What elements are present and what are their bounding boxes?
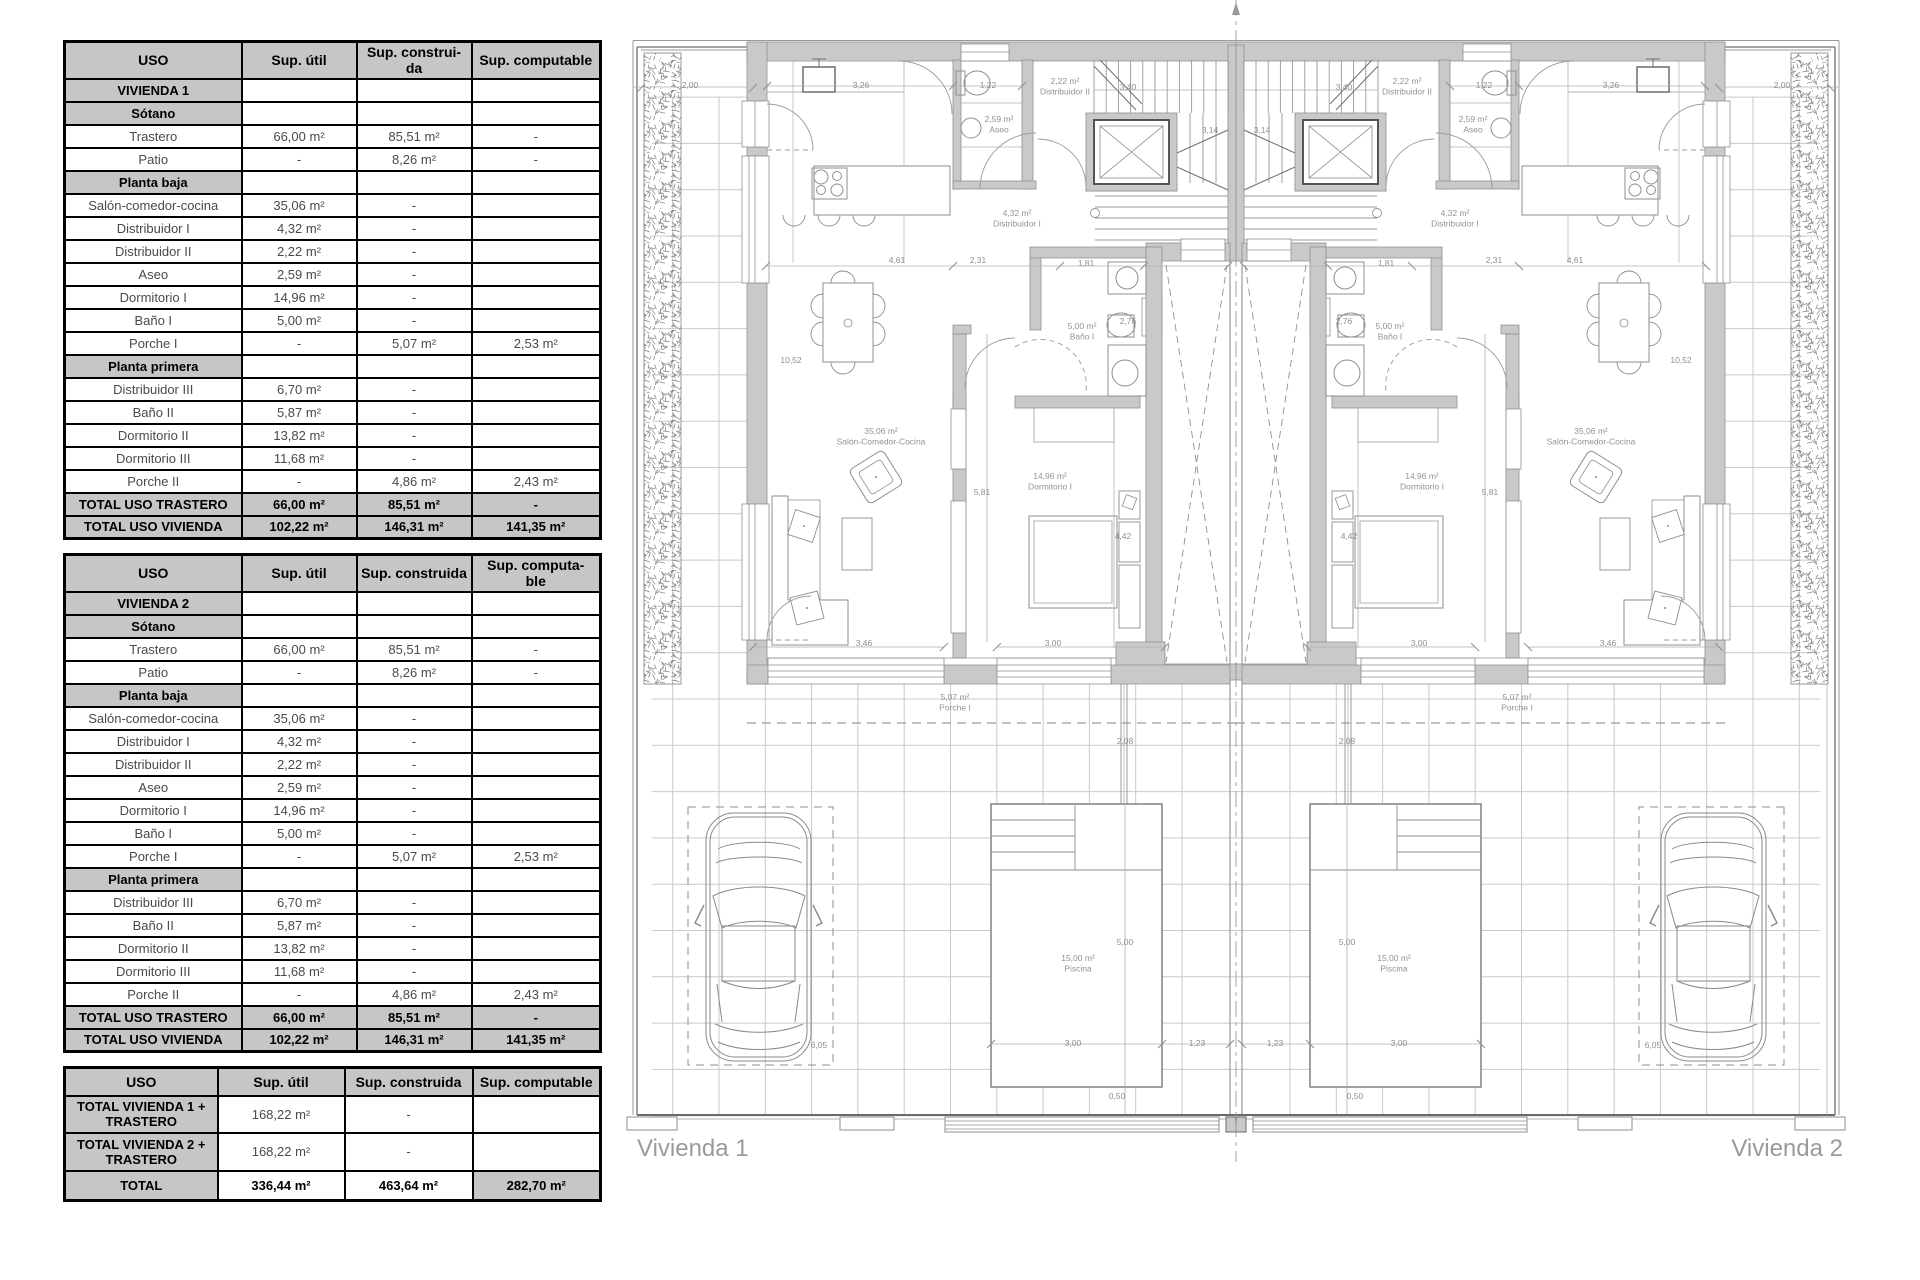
svg-text:4,32 m²Distribuidor I: 4,32 m²Distribuidor I — [1431, 208, 1479, 229]
svg-text:3,26: 3,26 — [853, 80, 870, 90]
svg-text:1,23: 1,23 — [1267, 1038, 1284, 1048]
svg-text:14,96 m²Dormitorio I: 14,96 m²Dormitorio I — [1400, 471, 1444, 492]
svg-text:2,59 m²Aseo: 2,59 m²Aseo — [1459, 114, 1488, 135]
svg-text:2,08: 2,08 — [1339, 736, 1356, 746]
svg-text:2,00: 2,00 — [682, 80, 699, 90]
svg-text:2,22 m²Distribuidor II: 2,22 m²Distribuidor II — [1382, 76, 1432, 97]
svg-text:0,50: 0,50 — [1109, 1091, 1126, 1101]
svg-text:1,23: 1,23 — [1189, 1038, 1206, 1048]
svg-text:Vivienda 2: Vivienda 2 — [1731, 1135, 1843, 1162]
svg-text:2,76: 2,76 — [1120, 316, 1137, 326]
svg-text:1,81: 1,81 — [1378, 258, 1395, 268]
svg-text:5,00: 5,00 — [1339, 937, 1356, 947]
svg-text:10,52: 10,52 — [780, 355, 802, 365]
svg-text:3,00: 3,00 — [1045, 638, 1062, 648]
svg-text:1,22: 1,22 — [1476, 80, 1493, 90]
svg-text:5,00: 5,00 — [1117, 937, 1134, 947]
svg-text:4,61: 4,61 — [1567, 255, 1584, 265]
svg-text:3,26: 3,26 — [1603, 80, 1620, 90]
svg-text:2,00: 2,00 — [1774, 80, 1791, 90]
svg-text:15,00 m²Piscina: 15,00 m²Piscina — [1377, 953, 1411, 974]
svg-text:2,31: 2,31 — [1486, 255, 1503, 265]
svg-text:Vivienda 1: Vivienda 1 — [637, 1135, 749, 1162]
svg-text:4,42: 4,42 — [1115, 531, 1132, 541]
svg-text:3,00: 3,00 — [1411, 638, 1428, 648]
svg-text:3,00: 3,00 — [1391, 1038, 1408, 1048]
svg-text:4,61: 4,61 — [889, 255, 906, 265]
svg-text:4,32 m²Distribuidor I: 4,32 m²Distribuidor I — [993, 208, 1041, 229]
svg-text:0,50: 0,50 — [1347, 1091, 1364, 1101]
svg-text:3,40: 3,40 — [1336, 82, 1353, 92]
svg-text:5,00 m²Baño I: 5,00 m²Baño I — [1068, 321, 1097, 342]
svg-text:3,14: 3,14 — [1254, 125, 1271, 135]
svg-text:10,52: 10,52 — [1670, 355, 1692, 365]
svg-text:2,76: 2,76 — [1336, 316, 1353, 326]
svg-text:1,22: 1,22 — [980, 80, 997, 90]
svg-text:2,31: 2,31 — [970, 255, 987, 265]
svg-text:3,46: 3,46 — [1600, 638, 1617, 648]
svg-text:2,59 m²Aseo: 2,59 m²Aseo — [985, 114, 1014, 135]
svg-text:3,46: 3,46 — [856, 638, 873, 648]
svg-text:35,06 m²Salón-Comedor-Cocina: 35,06 m²Salón-Comedor-Cocina — [1547, 426, 1636, 447]
svg-text:3,40: 3,40 — [1120, 82, 1137, 92]
svg-text:6,05: 6,05 — [811, 1040, 828, 1050]
svg-text:15,00 m²Piscina: 15,00 m²Piscina — [1061, 953, 1095, 974]
svg-text:2,08: 2,08 — [1117, 736, 1134, 746]
svg-text:5,07 m²Porche I: 5,07 m²Porche I — [939, 692, 971, 713]
svg-text:3,14: 3,14 — [1202, 125, 1219, 135]
svg-text:5,81: 5,81 — [1482, 487, 1499, 497]
svg-text:1,81: 1,81 — [1078, 258, 1095, 268]
svg-text:3,00: 3,00 — [1065, 1038, 1082, 1048]
svg-text:5,07 m²Porche I: 5,07 m²Porche I — [1501, 692, 1533, 713]
svg-text:14,96 m²Dormitorio I: 14,96 m²Dormitorio I — [1028, 471, 1072, 492]
svg-text:2,22 m²Distribuidor II: 2,22 m²Distribuidor II — [1040, 76, 1090, 97]
svg-text:6,05: 6,05 — [1645, 1040, 1662, 1050]
svg-text:5,81: 5,81 — [974, 487, 991, 497]
svg-text:35,06 m²Salón-Comedor-Cocina: 35,06 m²Salón-Comedor-Cocina — [837, 426, 926, 447]
svg-text:4,42: 4,42 — [1341, 531, 1358, 541]
svg-text:5,00 m²Baño I: 5,00 m²Baño I — [1376, 321, 1405, 342]
